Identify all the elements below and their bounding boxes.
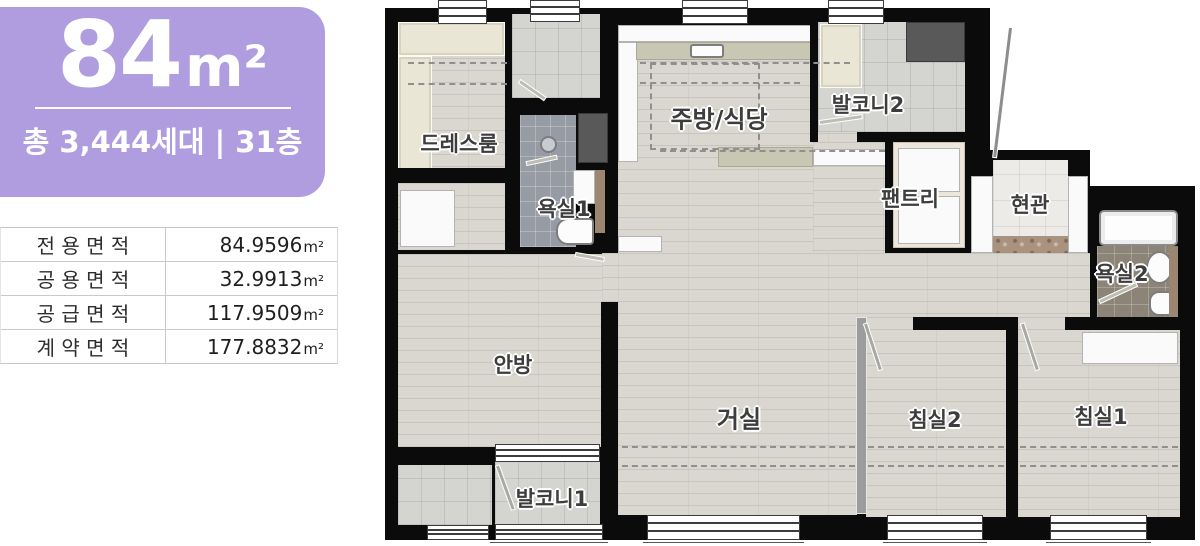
ceiling-dash-line — [408, 62, 507, 64]
room-label-bedroom1: 침실1 — [1074, 401, 1127, 431]
window — [887, 515, 983, 540]
master-door-opening — [602, 253, 618, 303]
wall-segment — [1065, 317, 1180, 330]
bathroom1-door — [595, 170, 605, 233]
shower-sink-icon — [540, 136, 557, 153]
window — [682, 0, 748, 24]
ac-unit — [906, 22, 965, 62]
ceiling-dash-line — [660, 150, 885, 152]
closet — [398, 22, 505, 56]
refrigerator — [618, 42, 638, 162]
measure-line — [643, 542, 804, 543]
room-label-entrance: 현관 — [1011, 189, 1050, 219]
curtain-dash-line — [1020, 446, 1178, 448]
door-swing — [993, 28, 1012, 157]
window — [828, 0, 884, 24]
room-label-living-room: 거실 — [717, 400, 761, 435]
doormat — [993, 236, 1068, 253]
kitchen-upper-cabinet — [618, 25, 812, 42]
bathroom2-door — [1169, 247, 1178, 317]
curtain-dash-line — [622, 465, 855, 467]
room-label-master-bedroom: 안방 — [494, 349, 533, 379]
sliding-partition — [857, 318, 866, 513]
floor-plan: 드레스룸 욕실1 주방/식당 발코니2 팬트리 현관 욕실2 안방 거실 침실2… — [0, 0, 1200, 546]
room-label-bathroom1: 욕실1 — [537, 193, 590, 223]
room-label-pantry: 팬트리 — [881, 183, 939, 213]
kitchen-sink — [690, 44, 724, 58]
page: 84 m² 총 3,444세대 | 31층 전 용 면 적 84.9596m² … — [0, 0, 1200, 546]
measure-line — [1046, 542, 1151, 543]
measure-line — [883, 542, 987, 543]
room-label-dressroom: 드레스룸 — [420, 128, 497, 158]
room-label-balcony2: 발코니2 — [832, 89, 905, 119]
corridor-floor — [857, 253, 1090, 317]
ceiling-dash-line — [408, 83, 507, 85]
window — [495, 524, 603, 540]
measure-line — [490, 542, 608, 543]
bedroom1-closet — [1082, 332, 1178, 364]
wardrobe-dark-unit — [578, 113, 608, 163]
window — [438, 0, 487, 24]
wall-segment — [810, 8, 818, 142]
curtain-dash-line — [868, 446, 1004, 448]
room-label-balcony1: 발코니1 — [516, 483, 589, 513]
window — [530, 0, 580, 22]
room-label-kitchen-dining: 주방/식당 — [670, 100, 767, 135]
window — [495, 444, 600, 462]
wall-segment — [913, 317, 1006, 330]
bathtub — [1099, 210, 1178, 246]
utility-balcony-floor — [398, 465, 492, 525]
wall-segment — [601, 302, 618, 540]
curtain-dash-line — [868, 465, 1004, 467]
closet — [400, 190, 455, 247]
curtain-dash-line — [622, 446, 855, 448]
curtain-dash-line — [1020, 465, 1178, 467]
lower-cabinet — [618, 236, 662, 252]
wall-segment — [967, 8, 990, 150]
shoe-cabinet — [1068, 176, 1088, 253]
room-label-bedroom2: 침실2 — [908, 404, 961, 434]
shoe-cabinet — [971, 176, 993, 253]
kitchen-counter — [636, 42, 812, 60]
balcony-cabinet — [820, 24, 862, 88]
window — [647, 515, 800, 540]
window — [427, 525, 489, 540]
window — [1050, 515, 1147, 540]
room-label-bathroom2: 욕실2 — [1095, 258, 1148, 288]
wall-segment — [398, 168, 486, 183]
